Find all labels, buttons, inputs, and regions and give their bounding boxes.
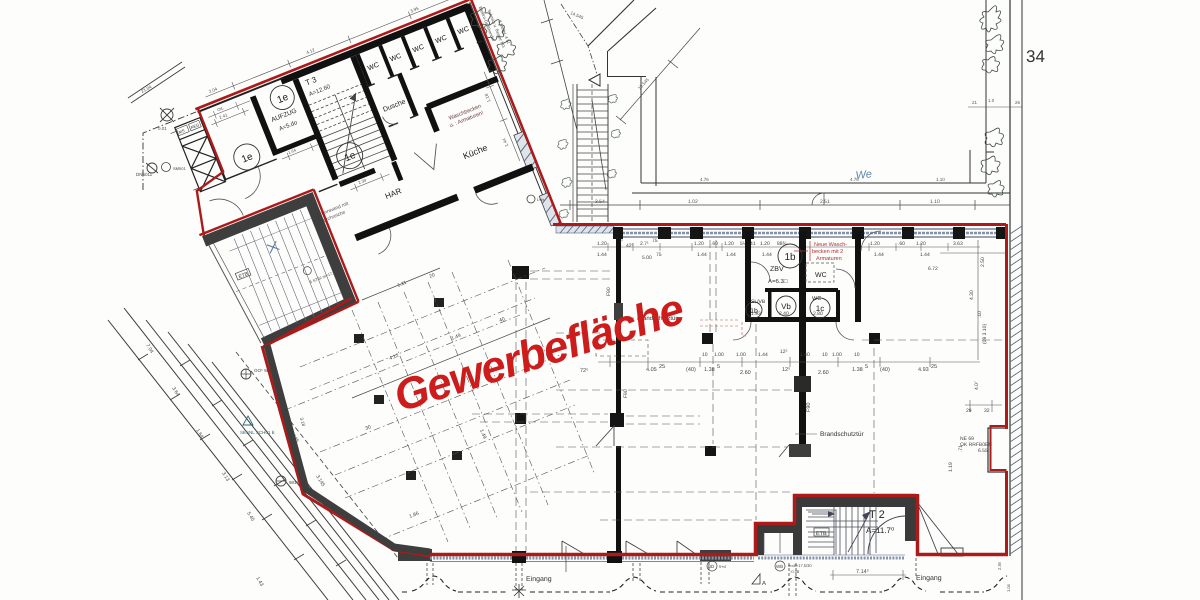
- svg-text:.71: .71: [958, 445, 964, 452]
- svg-text:A=11.7⁰: A=11.7⁰: [866, 526, 894, 535]
- svg-text:10: 10: [854, 352, 860, 358]
- svg-text:WC: WC: [815, 272, 827, 279]
- svg-text:2.50: 2.50: [980, 257, 986, 267]
- svg-text:(09 3.10): (09 3.10): [982, 324, 988, 344]
- svg-text:1.0: 1.0: [988, 98, 995, 103]
- svg-text:72⁵: 72⁵: [580, 368, 588, 374]
- svg-text:6.55: 6.55: [978, 448, 988, 454]
- svg-text:1.38: 1.38: [852, 367, 863, 373]
- svg-text:F90: F90: [606, 287, 612, 296]
- svg-text:1.44: 1.44: [758, 352, 768, 358]
- svg-text:1.44: 1.44: [597, 252, 607, 258]
- svg-text:1.20: 1.20: [694, 241, 704, 247]
- svg-text:ETB: ETB: [816, 531, 827, 537]
- svg-text:1.44: 1.44: [726, 252, 736, 258]
- svg-text:1.44: 1.44: [762, 252, 772, 258]
- svg-text:SESNL SCH01 E: SESNL SCH01 E: [240, 430, 275, 435]
- svg-text:12⁵: 12⁵: [782, 367, 790, 373]
- svg-text:5+d: 5+d: [719, 564, 726, 569]
- svg-text:1.20: 1.20: [597, 241, 607, 247]
- svg-text:7.14⁵: 7.14⁵: [856, 569, 869, 575]
- svg-text:2.60: 2.60: [818, 370, 829, 376]
- svg-text:4.30: 4.30: [969, 290, 975, 300]
- svg-text:Brandschutztür: Brandschutztür: [820, 431, 865, 438]
- svg-text:5: 5: [865, 364, 868, 370]
- svg-text:1.00: 1.00: [736, 352, 746, 358]
- svg-text:4.93: 4.93: [918, 367, 929, 373]
- svg-text:981³: 981³: [289, 480, 299, 485]
- svg-text:75: 75: [656, 252, 662, 258]
- svg-text:T 2: T 2: [869, 509, 885, 521]
- svg-text:A: A: [762, 580, 766, 587]
- svg-text:F90: F90: [806, 403, 812, 412]
- svg-text:(40): (40): [880, 367, 890, 373]
- svg-text:1.20: 1.20: [870, 241, 880, 247]
- svg-text:4.0⁷: 4.0⁷: [974, 381, 980, 390]
- svg-text:1.44: 1.44: [697, 252, 707, 258]
- svg-text:Eingang: Eingang: [916, 574, 942, 582]
- svg-text:4.76: 4.76: [700, 177, 709, 182]
- svg-text:25: 25: [659, 364, 665, 370]
- svg-text:WB: WB: [776, 564, 783, 569]
- svg-text:10: 10: [702, 352, 708, 358]
- svg-text:5.00: 5.00: [642, 255, 652, 261]
- svg-text:We: We: [855, 168, 872, 182]
- svg-text:2.40: 2.40: [779, 311, 789, 317]
- svg-text:4.05: 4.05: [646, 367, 657, 373]
- svg-text:Lsts: Lsts: [537, 197, 544, 202]
- svg-text:25: 25: [931, 364, 937, 370]
- svg-text:34: 34: [1026, 47, 1045, 66]
- svg-text:1.44: 1.44: [920, 252, 930, 258]
- svg-text:1.20: 1.20: [724, 241, 734, 247]
- svg-text:12⁵: 12⁵: [780, 349, 788, 355]
- svg-text:0.01: 0.01: [158, 126, 167, 131]
- svg-text:1.40: 1.40: [800, 352, 810, 358]
- svg-text:2.39: 2.39: [997, 561, 1002, 570]
- svg-text:75: 75: [652, 238, 658, 244]
- svg-text:SM501: SM501: [173, 166, 186, 171]
- svg-text:29: 29: [966, 408, 972, 414]
- svg-text:1.20: 1.20: [916, 241, 926, 247]
- svg-text:6.72: 6.72: [928, 266, 938, 272]
- svg-text:1.44: 1.44: [874, 252, 884, 258]
- svg-text:m=6×17,5/30: m=6×17,5/30: [788, 563, 812, 568]
- svg-text:1.93: 1.93: [751, 311, 761, 317]
- svg-text:32: 32: [984, 408, 990, 414]
- svg-text:.60: .60: [711, 241, 718, 247]
- svg-text:Vb: Vb: [781, 302, 791, 311]
- svg-text:ZBV: ZBV: [770, 266, 784, 273]
- svg-text:-0.38: -0.38: [790, 569, 800, 574]
- svg-text:10: 10: [822, 352, 828, 358]
- svg-text:BD: BD: [708, 564, 715, 569]
- svg-text:1.00: 1.00: [714, 352, 724, 358]
- svg-text:26: 26: [1015, 100, 1021, 105]
- svg-text:1.10: 1.10: [930, 199, 940, 205]
- svg-text:F90: F90: [623, 389, 629, 398]
- svg-text:3.63: 3.63: [953, 241, 963, 247]
- svg-text:Neue Wasch-: Neue Wasch-: [814, 242, 847, 248]
- svg-text:1.20: 1.20: [760, 241, 770, 247]
- svg-text:1.04: 1.04: [1006, 583, 1011, 592]
- svg-text:1.02: 1.02: [688, 199, 698, 205]
- svg-text:1.19: 1.19: [948, 462, 954, 472]
- svg-text:3.54: 3.54: [595, 199, 605, 205]
- svg-text:DN5011: DN5011: [136, 172, 153, 177]
- svg-text:1.10: 1.10: [936, 177, 945, 182]
- svg-text:42⁵: 42⁵: [626, 243, 634, 249]
- svg-text:Armaturen: Armaturen: [816, 256, 842, 262]
- svg-text:88¾: 88¾: [777, 241, 788, 247]
- svg-text:A=6.3□: A=6.3□: [768, 278, 788, 285]
- svg-text:(40): (40): [686, 367, 696, 373]
- svg-text:21: 21: [972, 100, 978, 105]
- svg-text:1b: 1b: [784, 252, 796, 263]
- svg-text:2.60: 2.60: [740, 370, 751, 376]
- svg-text:2.7¹: 2.7¹: [640, 241, 649, 247]
- svg-text:2.51: 2.51: [820, 199, 830, 205]
- svg-text:1.00: 1.00: [832, 352, 842, 358]
- svg-text:Eingang: Eingang: [526, 575, 552, 583]
- svg-text:2.80: 2.80: [813, 311, 823, 317]
- svg-text:becken mit 2: becken mit 2: [812, 249, 843, 255]
- svg-text:5: 5: [717, 364, 720, 370]
- svg-text:.60: .60: [898, 241, 905, 247]
